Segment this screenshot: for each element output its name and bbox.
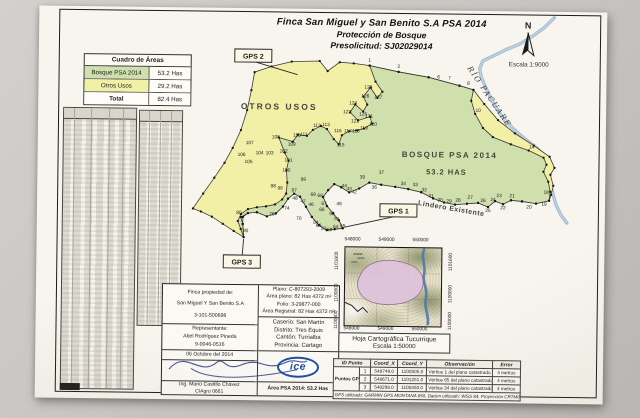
- vertex-number: 123: [343, 109, 351, 115]
- vertex-number: 34: [401, 181, 407, 187]
- vertex-number: 57: [321, 226, 327, 232]
- inset-scale: Escala 1:50000: [339, 342, 449, 350]
- inset-topo-map: [344, 246, 443, 327]
- title-info-block: Finca propiedad de: San Miguel Y San Ben…: [161, 283, 340, 397]
- inset-ytick: 1100800: [334, 278, 339, 308]
- zone-label-bosque-area: 53.2 HAS: [426, 167, 467, 176]
- vertex-number: 97: [291, 188, 297, 194]
- representative-id: 9-0046-0516: [162, 341, 257, 349]
- vertex-number: 99: [301, 177, 307, 183]
- vertex-number: 102: [280, 148, 288, 154]
- vertex-number: 120: [369, 122, 377, 128]
- zone-label-otros-usos: OTROS USOS: [241, 101, 318, 112]
- vertex-number: 113: [322, 122, 330, 128]
- representative-name: Abel Rodríguez Pineda: [162, 333, 257, 341]
- inset-xtick: 548000: [338, 237, 368, 242]
- paper-sheet: 1267810141819202122232425262728293031323…: [35, 6, 608, 405]
- vertex-number: 27: [467, 195, 473, 201]
- vertex-number: 125: [359, 111, 367, 117]
- vertex-number: 111: [300, 132, 308, 138]
- vertex-number: 126: [361, 93, 369, 99]
- distrito: Distrito: Tres Equis: [258, 327, 338, 334]
- vertex-number: 63: [316, 223, 322, 229]
- vertex-number: 100: [282, 168, 290, 174]
- vertex-number: 24: [490, 197, 496, 203]
- vertex-number: 18: [543, 190, 549, 196]
- gps-equipment-note: GPS utilizado: GARMIN GPS MONTANA 650, D…: [333, 391, 520, 401]
- vertex-number: 98: [271, 183, 277, 189]
- vertex-number: 42: [351, 189, 357, 195]
- owner-id: 3-101-500698: [163, 312, 258, 320]
- vertex-number: 70: [296, 216, 302, 222]
- scale-label: Escala 1:9000: [491, 61, 567, 69]
- vertex-number: 21: [509, 193, 515, 199]
- engineer-registration: CIAgro 0661: [162, 388, 257, 395]
- vertex-number: 43: [346, 186, 352, 192]
- vertex-number: 66: [319, 207, 325, 213]
- owner-heading: Finca propiedad de:: [163, 289, 258, 297]
- cell: 1: [360, 367, 371, 375]
- vertex-number: 112: [313, 123, 321, 129]
- vertex-number: 25: [485, 208, 491, 214]
- gps-points-table: ID Punto Coord_X Coord_Y Observación Err…: [333, 358, 521, 401]
- coordinate-table-left: [60, 107, 137, 390]
- vertex-number: 67: [321, 201, 327, 207]
- area-row-bosque-value: 53.2 Has: [150, 67, 191, 80]
- vertex-number: 10: [475, 108, 481, 114]
- inset-road: [345, 302, 368, 312]
- vertex-number: 105: [244, 159, 252, 165]
- vertex-number: 64: [333, 224, 339, 230]
- vertex-number: 22: [500, 205, 506, 211]
- canton: Cantón: Turrialba: [258, 335, 338, 342]
- inset-ytick: 1101600: [335, 246, 340, 276]
- map-date: 06 Octubre del 2014: [162, 351, 257, 359]
- area-row-otros-label: Otros Usos: [84, 79, 149, 92]
- inset-ytick: 1101600: [449, 247, 454, 277]
- vertex-number: 74: [284, 206, 290, 212]
- vertex-number: 115: [337, 142, 345, 148]
- caserio: Caserío: San Martín: [259, 319, 339, 326]
- vertex-number: 8: [467, 81, 470, 87]
- vertex-number: 122: [351, 118, 359, 124]
- vertex-number: 107: [246, 140, 254, 146]
- owner-name: San Miguel Y San Benito S.A: [163, 300, 258, 308]
- vertex-number: 1: [368, 58, 371, 64]
- representative-heading: Representante:: [162, 325, 257, 333]
- vertex-number: 128: [364, 85, 372, 91]
- vertex-number: 68: [317, 193, 323, 199]
- vertex-number: 32: [421, 187, 427, 193]
- vertex-number: 103: [266, 150, 274, 156]
- table-footer-row: GPS utilizado: GARMIN GPS MONTANA 650, D…: [333, 391, 520, 401]
- zone-label-bosque: BOSQUE PSA 2014: [402, 150, 498, 160]
- table-end-cell: [60, 383, 80, 390]
- vertex-number: 46: [308, 202, 314, 208]
- table-row: Total 82.4 Has: [84, 92, 190, 105]
- inset-ytick: 1100000: [448, 306, 453, 336]
- inset-xtick: 548000: [336, 326, 366, 331]
- vertex-number: 48: [292, 196, 298, 202]
- inset-xtick: 549000: [370, 327, 400, 332]
- vertex-number: 36: [372, 185, 378, 191]
- vertex-number: 26: [480, 198, 486, 204]
- vertex-number: 109: [288, 142, 296, 148]
- north-label: N: [517, 20, 539, 30]
- signature-area: [162, 360, 257, 382]
- gps-group-label: Puntos GPS: [333, 367, 359, 391]
- gps-marker-label: GPS 1: [388, 208, 409, 215]
- table-row: Bosque PSA 2014 53.2 Has: [85, 66, 191, 80]
- vertex-number: 106: [238, 152, 246, 158]
- vertex-number: 124: [349, 100, 357, 106]
- ice-logo: ice: [277, 356, 319, 378]
- vertex-number: 44: [342, 183, 348, 189]
- vertex-number: 6: [437, 74, 440, 80]
- inset-parcel-highlight: [357, 260, 423, 305]
- vertex-number: 49: [336, 201, 342, 207]
- inset-xtick: 550000: [406, 238, 436, 243]
- vertex-number: 58: [327, 227, 333, 233]
- vertex-number: 14: [529, 145, 535, 151]
- area-row-total-label: Total: [84, 92, 149, 105]
- table-row: Otros Usos 29.2 Has: [84, 79, 190, 93]
- vertex-number: 65: [340, 223, 346, 229]
- inset-ytick: 1100000: [334, 305, 339, 335]
- vertex-number: 127: [374, 95, 382, 101]
- area-row-bosque-label: Bosque PSA 2014: [85, 66, 150, 79]
- inset-xtick: 549000: [372, 238, 402, 243]
- area-row-total-value: 82.4 Has: [149, 93, 190, 106]
- vertex-number: 28: [455, 198, 461, 204]
- inset-sheet-name: Hoja Cartográfica Tucurrique: [339, 335, 449, 343]
- inset-ytick: 1100800: [448, 279, 453, 309]
- vertex-number: 19: [541, 202, 547, 208]
- vertex-number: 47: [300, 199, 306, 205]
- vertex-number: 69: [310, 192, 316, 198]
- registral-area: Área Registral: 82 Has 4372 m²: [259, 309, 339, 317]
- north-arrow-icon: [520, 31, 536, 57]
- vertex-number: 23: [496, 193, 502, 199]
- vertex-number: 20: [526, 205, 532, 211]
- vertex-number: 80: [236, 210, 242, 216]
- vertex-number: 90: [243, 228, 249, 234]
- vertex-number: 118: [352, 128, 360, 134]
- cell: 3: [359, 383, 370, 391]
- vertex-number: 117: [344, 128, 352, 134]
- vertex-number: 37: [379, 170, 385, 176]
- vertex-number: 104: [256, 150, 264, 156]
- map-title-block: Finca San Miguel y San Benito S.A PSA 20…: [209, 16, 554, 53]
- photo-of-map: 1267810141819202122232425262728293031323…: [0, 0, 640, 418]
- area-row-otros-value: 29.2 Has: [149, 80, 190, 93]
- vertex-number: 39: [360, 174, 366, 180]
- vertex-number: 101: [284, 158, 292, 164]
- vertex-number: 96: [277, 185, 283, 191]
- inset-river: [422, 248, 429, 325]
- area-psa-total: Área PSA 2014: 53.2 Has: [258, 385, 338, 393]
- gps-marker-label: GPS 3: [231, 259, 252, 266]
- area-summary-table: Cuadro de Áreas Bosque PSA 2014 53.2 Has…: [83, 53, 192, 106]
- provincia: Provincia: Cartago: [258, 342, 338, 349]
- inset-xtick: 550000: [404, 327, 434, 332]
- cell: 2: [359, 375, 370, 383]
- vertex-number: 119: [360, 125, 368, 131]
- gps-marker-label: GPS 2: [243, 54, 264, 61]
- vertex-number: 7: [448, 76, 451, 82]
- vertex-number: 29: [446, 199, 452, 205]
- vertex-number: 108: [272, 134, 280, 140]
- vertex-number: 51: [334, 216, 340, 222]
- vertex-number: 116: [334, 128, 342, 134]
- vertex-number: 31: [428, 193, 434, 199]
- vertex-number: 76: [269, 211, 275, 217]
- vertex-number: 2: [397, 64, 400, 70]
- inset-caption: Hoja Cartográfica Tucurrique Escala 1:50…: [338, 332, 450, 353]
- vertex-number: 33: [413, 182, 419, 188]
